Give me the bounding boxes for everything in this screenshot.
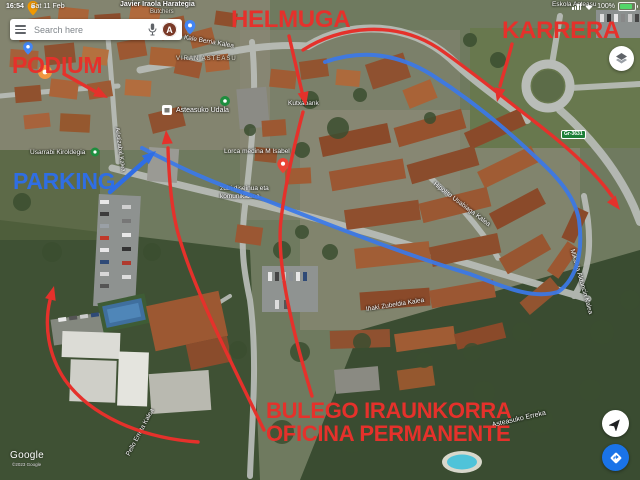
helmuga-arrow-line	[289, 36, 302, 92]
status-bar: 16:54 Sat 11 Feb 100%	[0, 0, 640, 13]
map-copyright: ©2023 Google	[12, 462, 41, 467]
layers-icon	[615, 52, 628, 65]
annotation-parking: PARKING	[13, 168, 115, 195]
directions-button[interactable]	[602, 444, 629, 471]
status-date: Sat 11 Feb	[31, 3, 65, 10]
red-arrowheads	[45, 87, 620, 301]
google-maps-screenshot: Javier Iraola Harategia Butchers Kale Be…	[0, 0, 640, 480]
account-avatar[interactable]: A	[162, 22, 177, 37]
status-time: 16:54	[6, 3, 24, 10]
blue-route-line	[142, 55, 580, 295]
udala-arrow-line	[168, 148, 264, 430]
microphone-icon[interactable]	[148, 23, 157, 36]
navigation-arrow-icon	[609, 417, 623, 431]
parking-arrow	[110, 160, 146, 192]
annotation-bulego-line2: OFICINA PERMANENTE	[266, 421, 510, 447]
wifi-icon	[584, 3, 594, 11]
bulego-line	[280, 112, 312, 396]
search-input[interactable]: Search here	[34, 25, 148, 35]
annotation-karrera: KARRERA	[502, 17, 620, 45]
battery-icon	[618, 2, 636, 11]
my-location-button[interactable]	[602, 410, 629, 437]
menu-icon[interactable]	[15, 25, 26, 34]
google-logo: Google	[10, 450, 44, 461]
annotation-podium: PODIUM	[12, 52, 102, 79]
karrera-arrow-line	[500, 44, 512, 86]
layers-button[interactable]	[609, 46, 634, 71]
status-time-date: 16:54 Sat 11 Feb	[6, 0, 65, 13]
red-arc-bottomleft	[47, 300, 198, 442]
search-bar[interactable]: Search here A	[10, 19, 182, 40]
cellular-signal-icon	[572, 3, 581, 10]
battery-percent: 100%	[597, 0, 615, 13]
directions-icon	[609, 451, 623, 465]
